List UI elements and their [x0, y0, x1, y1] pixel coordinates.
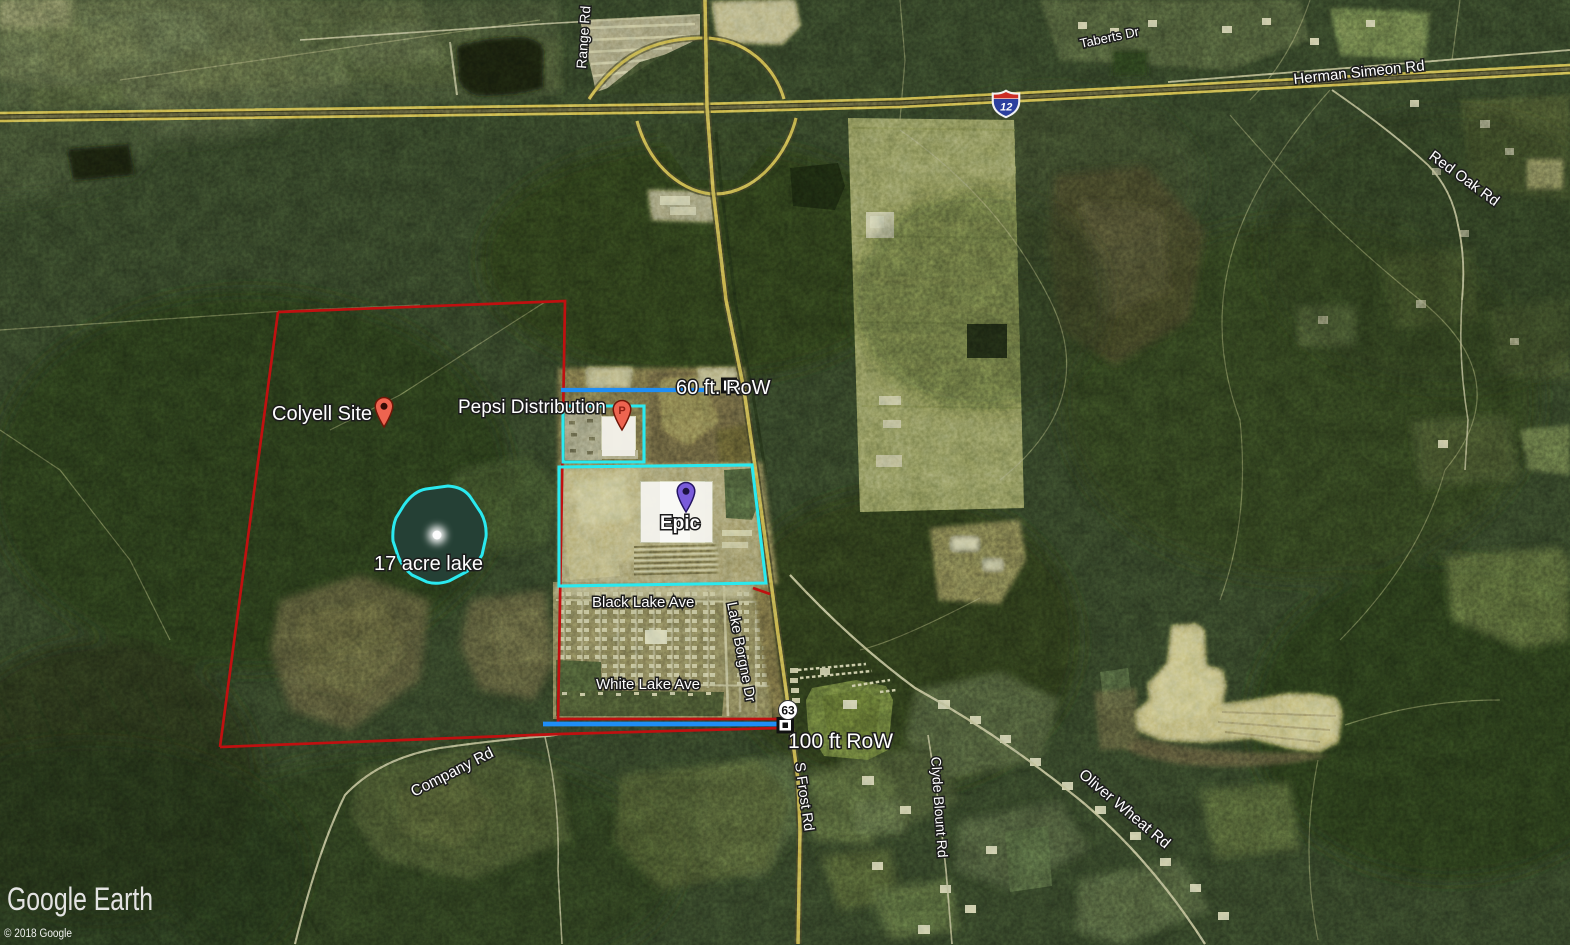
svg-text:12: 12	[1000, 102, 1012, 114]
svg-text:Pepsi Distribution: Pepsi Distribution	[458, 397, 606, 418]
svg-text:Black Lake Ave: Black Lake Ave	[592, 594, 694, 611]
svg-text:© 2018 Google: © 2018 Google	[4, 928, 72, 940]
svg-text:White Lake Ave: White Lake Ave	[596, 676, 700, 693]
svg-text:17 acre lake: 17 acre lake	[374, 553, 483, 575]
svg-text:Google Earth: Google Earth	[7, 881, 153, 917]
svg-text:100 ft RoW: 100 ft RoW	[788, 730, 893, 753]
svg-text:63: 63	[781, 704, 795, 718]
svg-text:60 ft. RoW: 60 ft. RoW	[676, 377, 771, 399]
svg-text:Colyell Site: Colyell Site	[272, 403, 372, 425]
svg-text:Epic: Epic	[660, 513, 701, 534]
svg-text:P: P	[618, 405, 625, 417]
